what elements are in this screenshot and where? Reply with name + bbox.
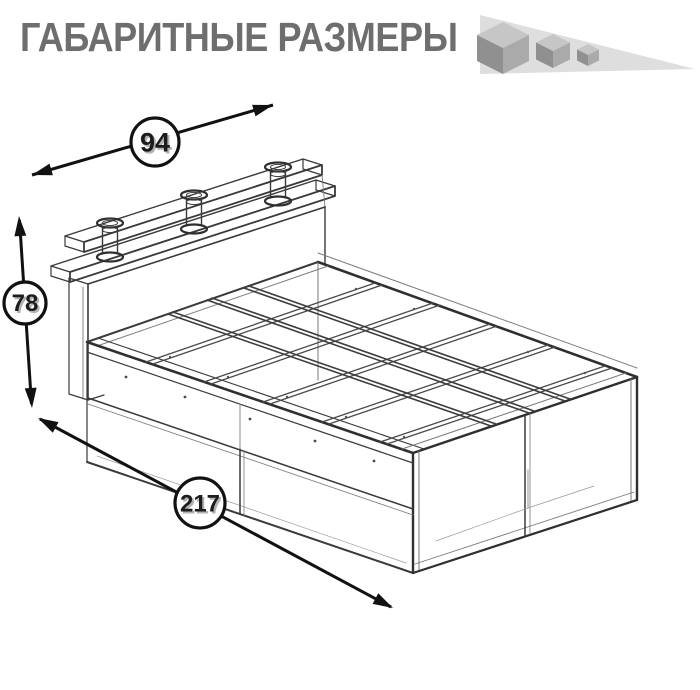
length-arrowhead-right (373, 593, 393, 608)
width-value: 94 (140, 128, 170, 158)
drawer-top-edge (88, 398, 413, 509)
page: { "header": { "title": "ГАБАРИТНЫЕ РАЗМЕ… (0, 0, 700, 690)
width-arrowhead-right (252, 105, 273, 117)
length-value: 217 (180, 491, 220, 518)
height-value: 78 (12, 290, 39, 317)
height-arrowhead-top (14, 216, 26, 236)
headboard (51, 159, 335, 400)
bed-technical-drawing: 94 94 78 78 217 217 (0, 0, 700, 690)
shelf-support-cylinder-3 (265, 163, 291, 206)
height-arrowhead-bottom (25, 388, 37, 408)
dimension-width: 94 94 (32, 105, 273, 175)
back-rail (318, 262, 637, 377)
length-arrowhead-left (38, 418, 59, 433)
dimension-height: 78 78 (4, 216, 46, 408)
rail-screw-dots (125, 376, 376, 463)
dimension-length: 217 217 (38, 418, 393, 608)
drawer-fronts (88, 398, 413, 516)
front-rail (87, 342, 413, 453)
width-arrowhead-left (32, 164, 53, 176)
slat-grid (146, 283, 612, 444)
